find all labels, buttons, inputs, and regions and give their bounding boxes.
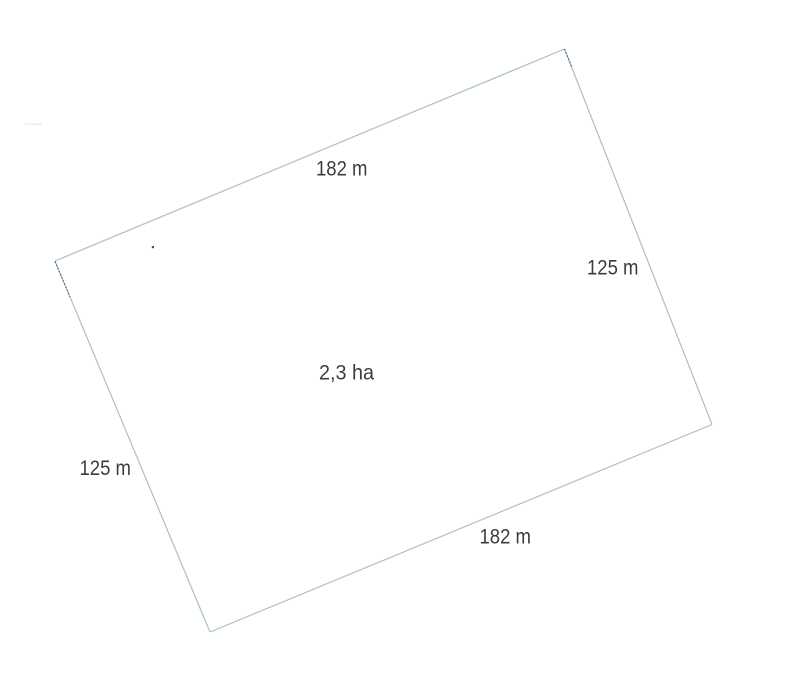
- svg-text:125 m: 125 m: [80, 456, 132, 480]
- svg-text:182 m: 182 m: [480, 525, 532, 549]
- svg-text:125 m: 125 m: [587, 256, 639, 280]
- svg-text:182 m: 182 m: [316, 157, 368, 181]
- svg-text:2,3 ha: 2,3 ha: [319, 361, 374, 385]
